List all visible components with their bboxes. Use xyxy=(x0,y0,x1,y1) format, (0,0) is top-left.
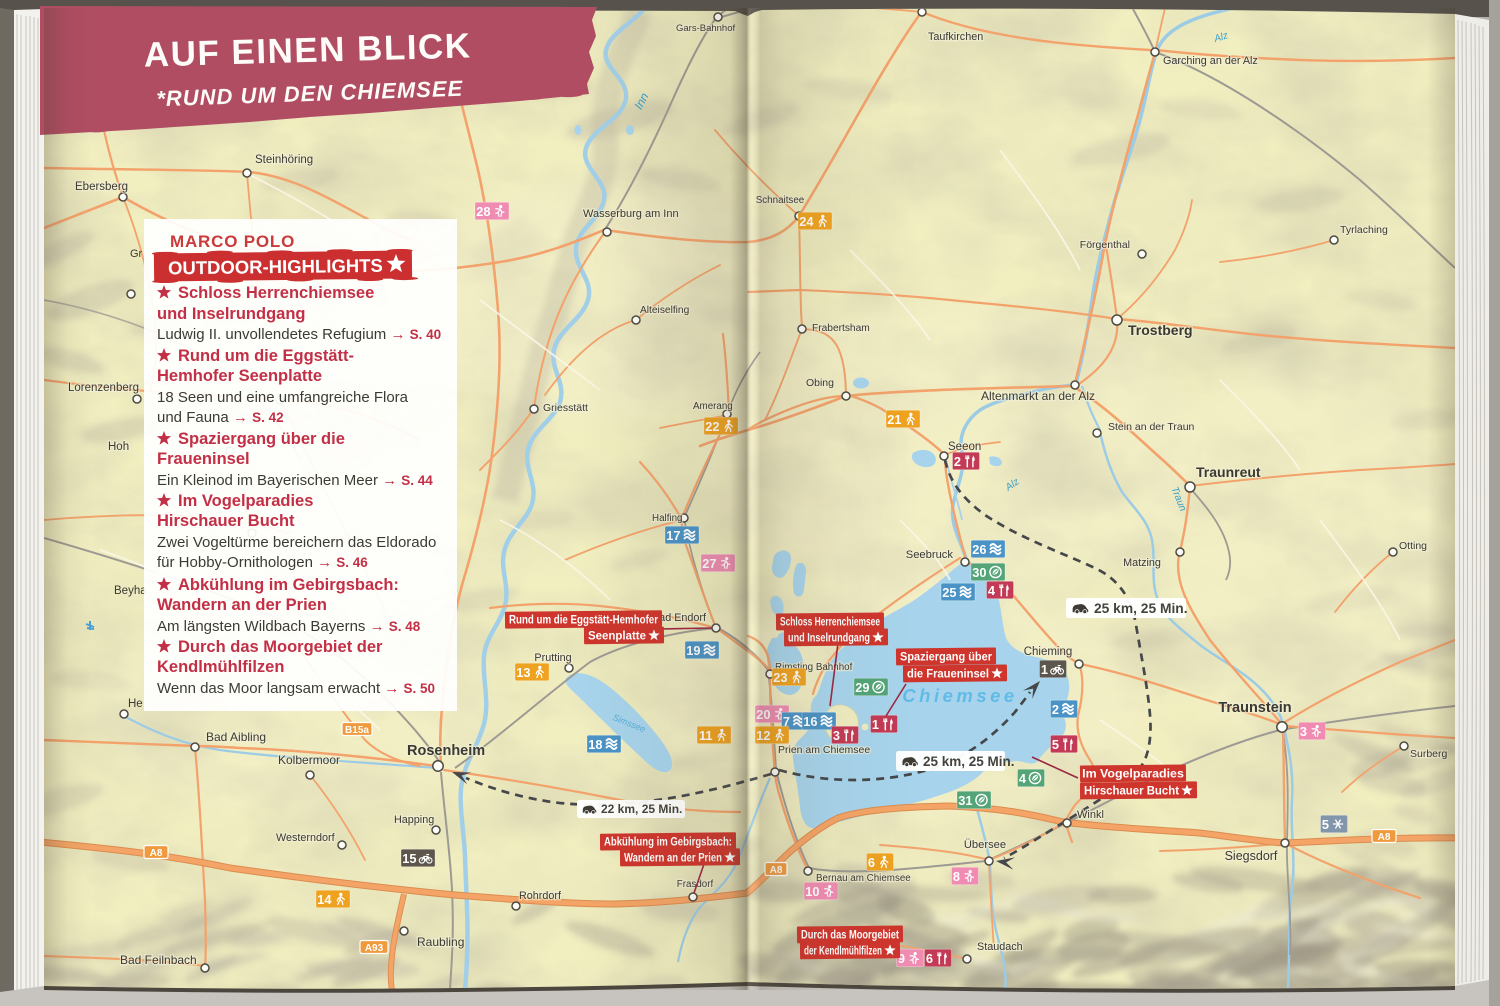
svg-text:13: 13 xyxy=(516,665,530,680)
svg-text:30: 30 xyxy=(972,565,986,580)
svg-text:31: 31 xyxy=(958,793,972,808)
svg-text:25: 25 xyxy=(942,585,956,600)
svg-text:4: 4 xyxy=(988,583,996,598)
svg-text:28: 28 xyxy=(476,204,490,219)
svg-text:4: 4 xyxy=(1019,771,1027,786)
svg-text:1: 1 xyxy=(1041,662,1048,677)
svg-text:25 km, 25 Min.: 25 km, 25 Min. xyxy=(923,754,1015,769)
svg-text:6: 6 xyxy=(926,951,933,966)
svg-text:Staudach: Staudach xyxy=(977,941,1023,953)
svg-text:Seeon: Seeon xyxy=(948,441,981,453)
svg-text:Taufkirchen: Taufkirchen xyxy=(928,31,983,43)
svg-text:8: 8 xyxy=(953,869,960,884)
svg-text:Übersee: Übersee xyxy=(964,839,1006,851)
svg-text:Prutting: Prutting xyxy=(534,652,571,664)
svg-text:26: 26 xyxy=(972,542,986,557)
svg-text:2: 2 xyxy=(954,454,961,469)
svg-text:Rohrdorf: Rohrdorf xyxy=(519,890,562,902)
